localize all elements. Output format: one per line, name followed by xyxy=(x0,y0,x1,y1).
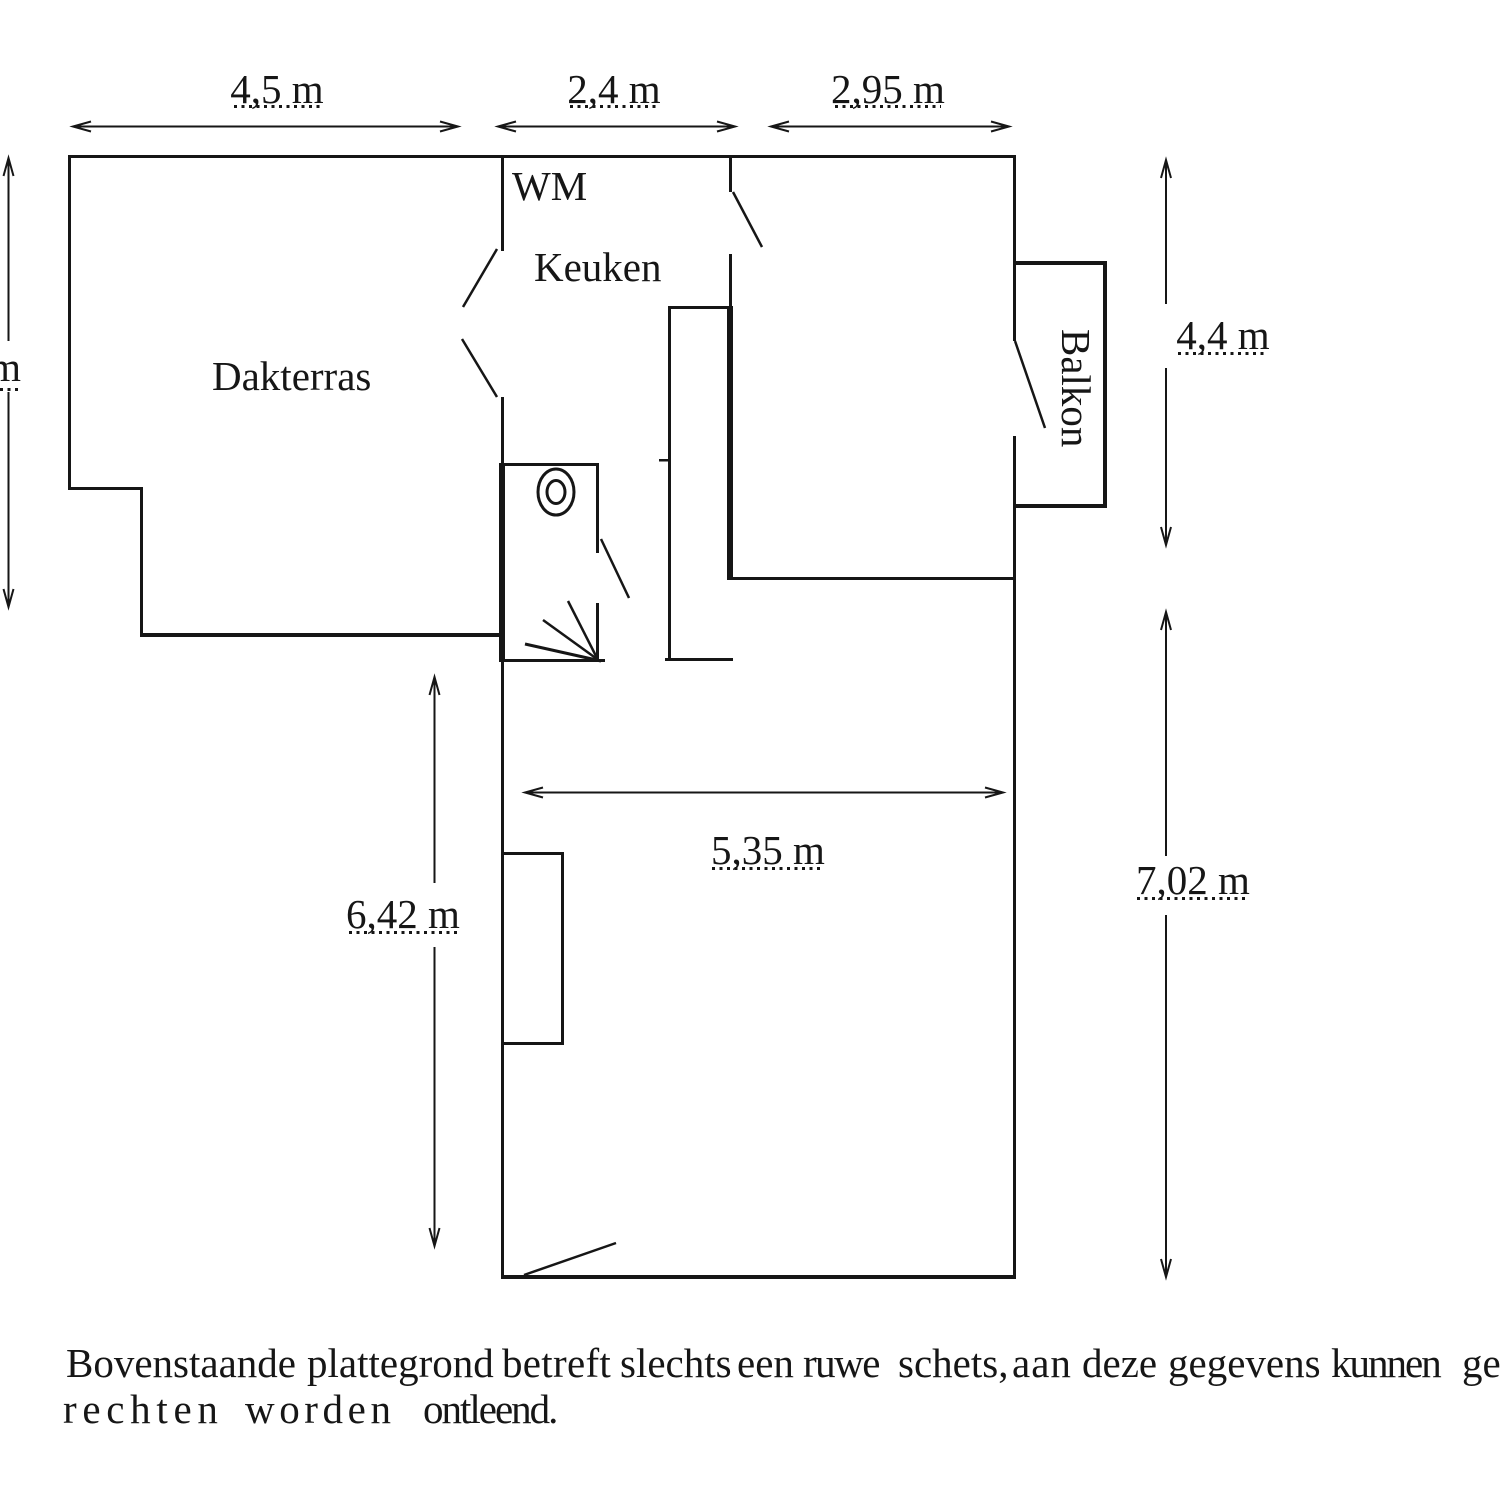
svg-text:Balkon: Balkon xyxy=(1053,329,1099,447)
svg-text:WM: WM xyxy=(512,163,587,209)
svg-text:Bovenstaandeplattegrondbetreft: Bovenstaandeplattegrondbetreftslechtseen… xyxy=(66,1340,1500,1386)
svg-text:7,02 m: 7,02 m xyxy=(1136,857,1250,903)
svg-text:Dakterras: Dakterras xyxy=(212,353,371,399)
svg-text:5,35 m: 5,35 m xyxy=(711,827,825,873)
svg-text:rechtenwordenontleend.: rechtenwordenontleend. xyxy=(63,1386,556,1432)
svg-text:6,42 m: 6,42 m xyxy=(346,891,460,937)
svg-text:m: m xyxy=(0,344,21,390)
svg-text:4,4 m: 4,4 m xyxy=(1176,312,1270,358)
svg-text:Keuken: Keuken xyxy=(534,244,662,290)
